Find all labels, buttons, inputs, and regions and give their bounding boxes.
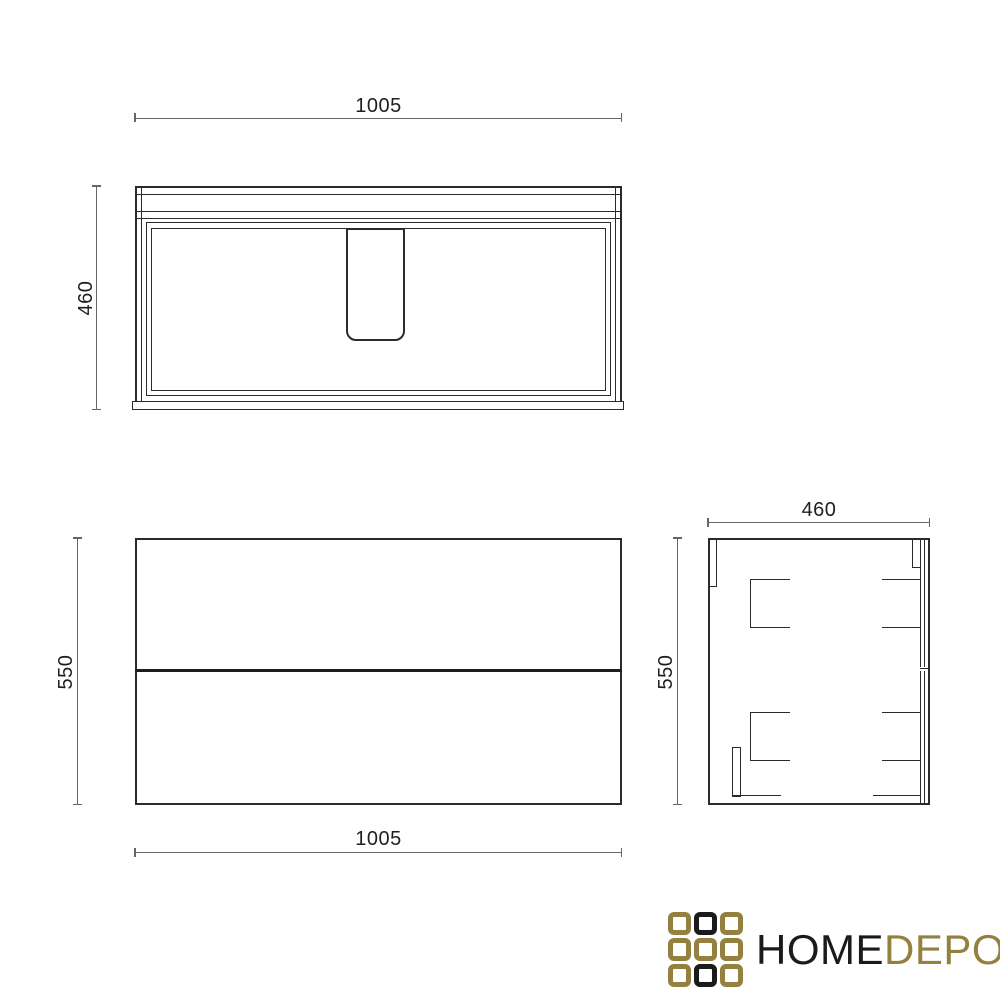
side-view-height-label: 550 — [656, 650, 676, 694]
logo-square — [720, 938, 743, 961]
dimension-tick — [673, 804, 682, 806]
drawer-divider-line — [135, 669, 622, 672]
top-view-width-dimension-line — [135, 118, 622, 119]
bracket-bottom-left — [732, 747, 741, 797]
drawer-rail-line — [882, 579, 920, 580]
wall-bracket-top-left — [708, 538, 717, 587]
logo-square — [668, 912, 691, 935]
lower-drawer-top-line — [750, 712, 790, 713]
logo-square — [668, 964, 691, 987]
logo-text-secondary: DEPO — [884, 926, 1000, 973]
top-view-edge-line — [136, 218, 621, 219]
bottom-shelf-line-left — [732, 795, 781, 796]
side-view-depth-label: 460 — [708, 500, 930, 520]
back-panel-lower — [920, 671, 925, 804]
front-view-width-dimension-line — [135, 852, 622, 853]
top-view-front-edge — [132, 401, 624, 410]
logo-square — [720, 912, 743, 935]
top-view-depth-label: 460 — [76, 276, 96, 320]
basin-drain-cutout — [346, 228, 405, 341]
top-view-edge-line — [136, 194, 621, 195]
drawer-rail-line — [873, 795, 920, 796]
back-panel-gap-line — [920, 668, 929, 669]
front-view-height-label: 550 — [56, 650, 76, 694]
drawer-rail-line — [882, 712, 920, 713]
logo-squares-icon — [668, 912, 743, 987]
side-view-depth-dimension-line — [708, 522, 930, 523]
upper-drawer-top-line — [750, 579, 790, 580]
side-view-height-dimension-line — [677, 538, 678, 805]
upper-drawer-bottom-line — [750, 627, 790, 628]
dimension-tick — [73, 537, 82, 539]
logo-square — [668, 938, 691, 961]
dimension-tick — [92, 185, 101, 187]
dimension-tick — [92, 409, 101, 411]
logo-square — [694, 964, 717, 987]
top-view-side-line-left — [141, 187, 142, 409]
drawing-canvas: 1005 460 550 1005 — [0, 0, 1000, 1000]
front-view-height-dimension-line — [77, 538, 78, 805]
top-view-edge-line — [136, 211, 621, 212]
logo-text-primary: HOME — [756, 926, 884, 973]
wall-bracket-top-right — [912, 538, 921, 568]
logo-wordmark: HOMEDEPO — [756, 927, 1000, 973]
top-view-width-label: 1005 — [135, 96, 622, 116]
logo-square — [694, 912, 717, 935]
lower-drawer-back-line — [750, 712, 751, 761]
front-view-width-label: 1005 — [135, 829, 622, 849]
logo-square — [694, 938, 717, 961]
upper-drawer-back-line — [750, 579, 751, 628]
drawer-rail-line — [882, 627, 920, 628]
logo-square — [720, 964, 743, 987]
dimension-tick — [673, 537, 682, 539]
dimension-tick — [73, 804, 82, 806]
drawer-rail-line — [882, 760, 920, 761]
top-view-side-line-right — [615, 187, 616, 409]
lower-drawer-bottom-line — [750, 760, 790, 761]
